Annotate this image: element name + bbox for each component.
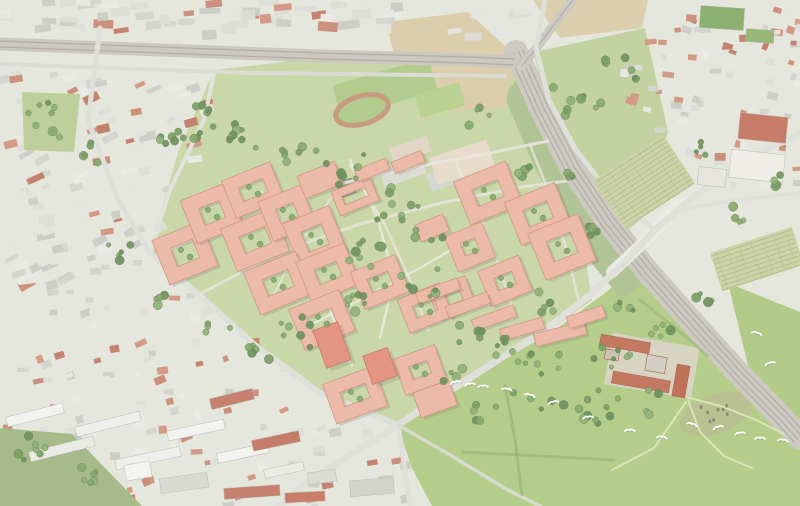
haze-overlay <box>0 0 800 506</box>
aerial-masterplan-view <box>0 0 800 506</box>
aerial-scene <box>0 0 800 506</box>
